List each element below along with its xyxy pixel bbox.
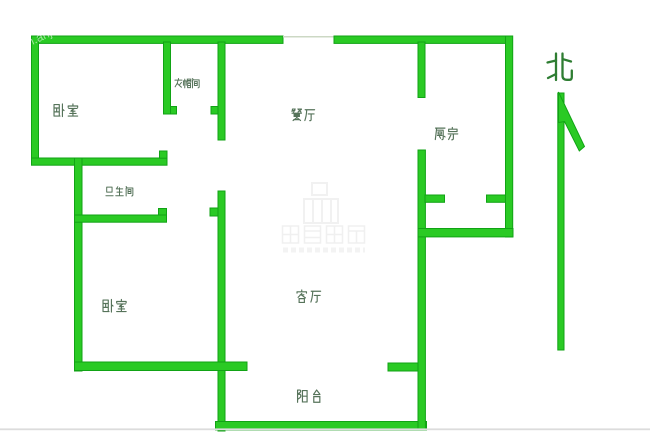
svg-text:m.anjuke.com: m.anjuke.com: [21, 6, 95, 50]
